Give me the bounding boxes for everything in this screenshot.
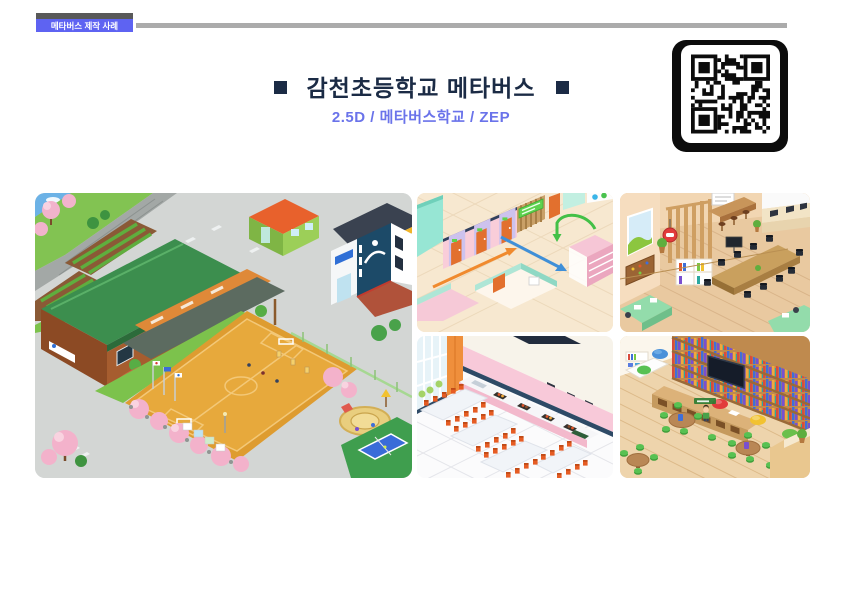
hallway-illustration [417,193,613,332]
qr-card [681,45,780,143]
meeting-room-map-image [620,193,810,332]
header-divider-line [136,23,787,28]
qr-pattern [691,54,770,134]
campus-overview-image [35,193,412,478]
campus-illustration [35,193,412,478]
title-bullet-left: ■ [274,81,287,94]
library-illustration [620,336,810,478]
cafeteria-map-image [417,336,613,478]
slide-page: 메타버스 제작 사례 ■감천초등학교 메타버스■ 2.5D / 메타버스학교 /… [0,0,842,596]
qr-code [672,40,788,152]
meeting-room-illustration [620,193,810,332]
kitchenette [762,193,810,233]
hallway-map-image [417,193,613,332]
cafeteria-illustration [417,336,613,478]
section-badge: 메타버스 제작 사례 [36,19,133,32]
page-title: 감천초등학교 메타버스 [307,75,536,101]
library-map-image [620,336,810,478]
title-bullet-right: ■ [556,81,569,94]
